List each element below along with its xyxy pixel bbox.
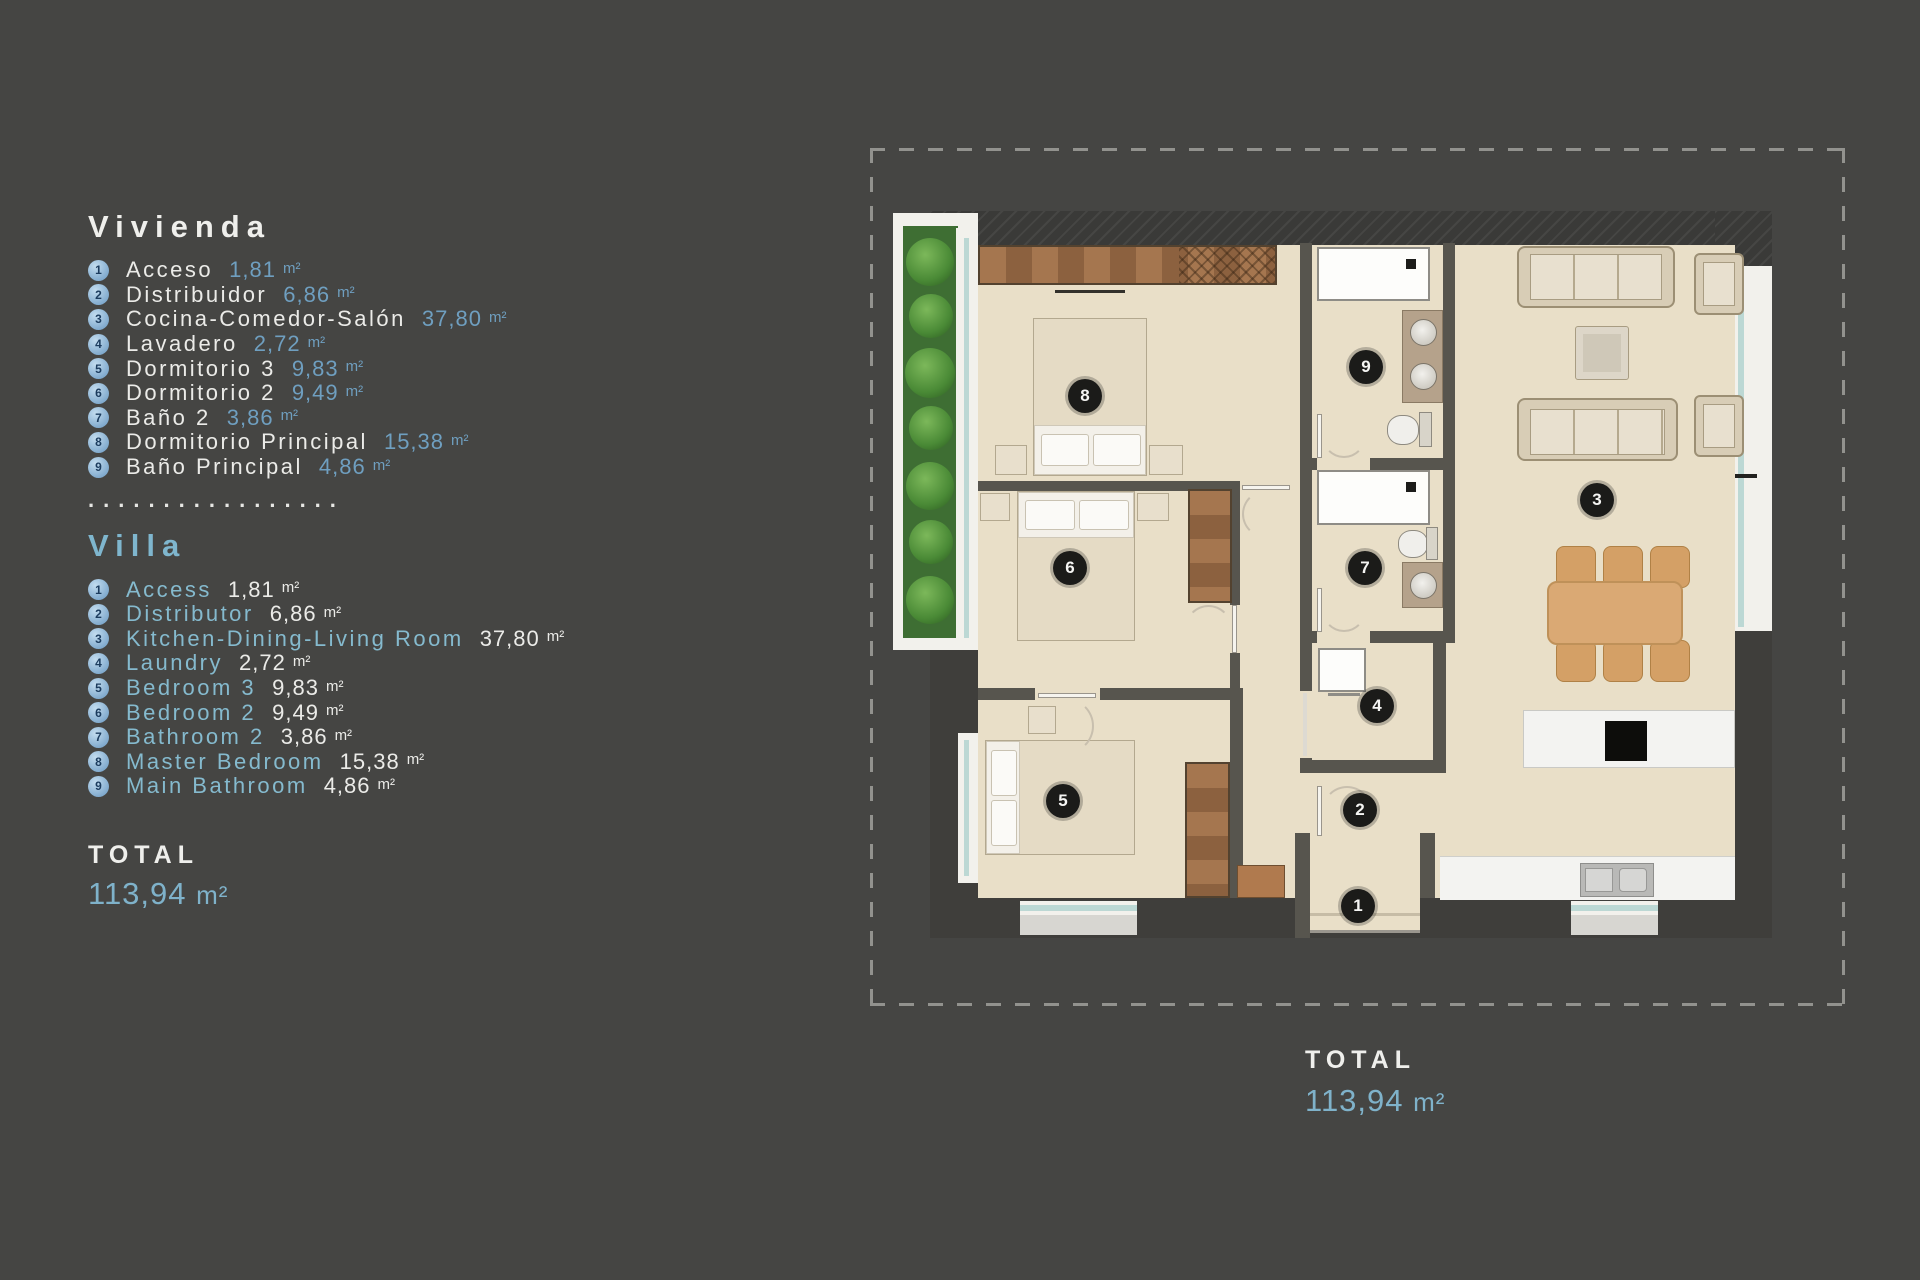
legend-item-unit: m² — [335, 727, 353, 744]
bush-icon — [906, 576, 954, 624]
legend-item-area: 37,80 — [422, 306, 482, 332]
sofa-bottom — [1517, 398, 1678, 461]
legend-item-number: 4 — [88, 334, 109, 355]
wall-laundry-right — [1433, 643, 1446, 760]
nightstand — [1149, 445, 1183, 475]
legend-item-unit: m² — [489, 309, 507, 326]
window-sill — [1571, 915, 1658, 935]
legend-item-unit: m² — [326, 678, 344, 695]
legend-item: 6Dormitorio 29,49m² — [88, 381, 748, 406]
legend-item: 9Baño Principal4,86m² — [88, 455, 748, 480]
legend-item-number: 3 — [88, 309, 109, 330]
room-badge-access: 1 — [1341, 889, 1375, 923]
legend-item: 9Main Bathroom4,86m² — [88, 774, 748, 799]
dining-table — [1547, 581, 1683, 645]
wall-access-right — [1420, 833, 1435, 898]
door-arc — [1242, 490, 1290, 538]
legend-item-number: 9 — [88, 457, 109, 478]
legend-item-number: 1 — [88, 260, 109, 281]
legend-total-label: TOTAL — [88, 841, 748, 870]
legend-item: 7Bathroom 23,86m² — [88, 725, 748, 750]
legend-item-unit: m² — [407, 751, 425, 768]
villa-title: Villa — [88, 527, 748, 565]
kitchen-sink — [1580, 863, 1654, 897]
legend-item-unit: m² — [337, 284, 355, 301]
plan-total-number: 113,94 — [1305, 1083, 1404, 1118]
window-left-bedroom5 — [958, 733, 978, 883]
legend-item: 1Access1,81m² — [88, 577, 748, 602]
legend-item-number: 9 — [88, 776, 109, 797]
room-badge-main-bathroom: 9 — [1349, 350, 1383, 384]
shower-bath2 — [1317, 470, 1430, 525]
legend-item-area: 9,49 — [292, 380, 339, 406]
legend-item-area: 3,86 — [227, 405, 274, 431]
laundry-sliding-door — [1303, 693, 1307, 756]
legend-item-area: 9,49 — [272, 700, 319, 726]
legend-item-name: Bedroom 3 — [126, 675, 256, 701]
legend-total-number: 113,94 — [88, 876, 187, 911]
legend-item-area: 37,80 — [480, 626, 540, 652]
legend-item-name: Dormitorio Principal — [126, 429, 368, 455]
door-bedroom2 — [1232, 605, 1237, 653]
legend-item-unit: m² — [283, 260, 301, 277]
legend-item-name: Bedroom 2 — [126, 700, 256, 726]
toilet-tank — [1426, 527, 1438, 560]
legend-item: 5Dormitorio 39,83m² — [88, 356, 748, 381]
wall-bath7-bottom-stub — [1307, 631, 1317, 643]
legend-item-number: 1 — [88, 579, 109, 600]
washer-base — [1328, 693, 1360, 696]
bush-icon — [906, 238, 954, 286]
legend-item-unit: m² — [373, 457, 391, 474]
room-badge-kitchen-living: 3 — [1580, 483, 1614, 517]
shower-main — [1317, 247, 1430, 301]
room-badge-laundry: 4 — [1360, 689, 1394, 723]
legend-item-name: Kitchen-Dining-Living Room — [126, 626, 464, 652]
legend-item-name: Access — [126, 577, 212, 603]
door-arc — [1038, 698, 1094, 754]
vanity-main — [1402, 310, 1443, 403]
legend-panel: Vivienda 1Acceso1,81m²2Distribuidor6,86m… — [88, 208, 748, 912]
window-mullion — [1735, 474, 1757, 478]
bush-icon — [909, 294, 953, 338]
window-glazing — [1020, 905, 1137, 911]
wardrobe-shelving — [1179, 247, 1275, 283]
legend-item-unit: m² — [346, 383, 364, 400]
bush-icon — [909, 520, 953, 564]
toilet-main — [1387, 415, 1419, 445]
legend-item: 7Baño 23,86m² — [88, 406, 748, 431]
vivienda-list: 1Acceso1,81m²2Distribuidor6,86m²3Cocina-… — [88, 258, 748, 479]
legend-item-area: 6,86 — [283, 282, 330, 308]
armchair-top — [1694, 253, 1744, 315]
window-left-bedrooms — [956, 228, 978, 648]
wall-bed6-bed5-right — [1100, 688, 1243, 700]
plot-boundary-top — [870, 148, 1845, 151]
toilet-tank — [1419, 412, 1432, 447]
legend-item: 6Bedroom 29,49m² — [88, 700, 748, 725]
armchair-bottom — [1694, 395, 1744, 457]
dining-chair — [1556, 640, 1596, 682]
window-glazing — [964, 740, 969, 876]
top-wall — [930, 211, 1772, 245]
legend-item-number: 8 — [88, 432, 109, 453]
legend-item-unit: m² — [547, 628, 565, 645]
villa-list: 1Access1,81m²2Distributor6,86m²3Kitchen-… — [88, 577, 748, 798]
legend-item-name: Lavadero — [126, 331, 238, 357]
cooktop — [1605, 721, 1647, 761]
legend-item-unit: m² — [281, 407, 299, 424]
window-glazing — [1571, 905, 1658, 911]
legend-item-unit: m² — [326, 702, 344, 719]
legend-item-name: Main Bathroom — [126, 773, 308, 799]
legend-item-name: Acceso — [126, 257, 213, 283]
bush-icon — [905, 348, 955, 398]
wall-bath9-bottom-stub — [1307, 458, 1317, 470]
dining-chair — [1603, 640, 1643, 682]
legend-item-name: Dormitorio 2 — [126, 380, 276, 406]
window-bottom-bedroom5 — [1020, 901, 1137, 915]
legend-item: 2Distributor6,86m² — [88, 602, 748, 627]
legend-item: 4Laundry2,72m² — [88, 651, 748, 676]
legend-item-name: Baño Principal — [126, 454, 303, 480]
vanity-bath2 — [1402, 562, 1443, 608]
legend-item-area: 15,38 — [340, 749, 400, 775]
entry-cabinet — [1237, 865, 1285, 898]
legend-total-value: 113,94 m² — [88, 876, 748, 912]
legend-item-unit: m² — [282, 579, 300, 596]
window-sill — [1020, 915, 1137, 935]
legend-item-area: 2,72 — [239, 650, 286, 676]
kitchen-counter — [1440, 856, 1735, 900]
armchair-cushion — [1703, 262, 1735, 306]
legend-item-number: 8 — [88, 751, 109, 772]
wall-bed6-bed5-left — [978, 688, 1035, 700]
room-badge-bathroom2: 7 — [1348, 551, 1382, 585]
legend-item-area: 2,72 — [254, 331, 301, 357]
legend-total: TOTAL 113,94 m² — [88, 841, 748, 912]
wardrobe-bedroom3 — [1185, 762, 1230, 898]
plan-total: TOTAL 113,94 m² — [1305, 1046, 1445, 1119]
wall-access-left — [1295, 833, 1310, 938]
window-bottom-kitchen — [1571, 901, 1658, 915]
legend-item: 3Cocina-Comedor-Salón37,80m² — [88, 307, 748, 332]
legend-item-number: 3 — [88, 628, 109, 649]
legend-item: 2Distribuidor6,86m² — [88, 283, 748, 308]
legend-item: 5Bedroom 39,83m² — [88, 676, 748, 701]
legend-item-area: 1,81 — [229, 257, 276, 283]
page: Vivienda 1Acceso1,81m²2Distribuidor6,86m… — [0, 0, 1920, 1280]
legend-item-number: 6 — [88, 383, 109, 404]
legend-item-name: Dormitorio 3 — [126, 356, 276, 382]
floor-plan: 1 2 3 4 5 6 7 8 9 — [870, 148, 1845, 1006]
wardrobe-track — [1055, 290, 1125, 293]
legend-item-name: Baño 2 — [126, 405, 211, 431]
legend-item-name: Master Bedroom — [126, 749, 324, 775]
legend-item-unit: m² — [324, 604, 342, 621]
nightstand — [995, 445, 1027, 475]
legend-item: 1Acceso1,81m² — [88, 258, 748, 283]
legend-item-number: 4 — [88, 653, 109, 674]
legend-item-number: 6 — [88, 702, 109, 723]
legend-item-name: Cocina-Comedor-Salón — [126, 306, 406, 332]
legend-item: 8Master Bedroom15,38m² — [88, 750, 748, 775]
separator-dots: ................. — [88, 495, 748, 505]
legend-item-number: 2 — [88, 604, 109, 625]
wall-laundry-bottom — [1307, 760, 1446, 773]
legend-item-number: 5 — [88, 678, 109, 699]
washing-machine — [1318, 648, 1366, 692]
plan-total-label: TOTAL — [1305, 1046, 1445, 1075]
toilet-bath2 — [1398, 530, 1428, 558]
legend-item-area: 6,86 — [270, 601, 317, 627]
legend-item-number: 7 — [88, 727, 109, 748]
plan-total-unit: m² — [1413, 1087, 1445, 1117]
coffee-table — [1575, 326, 1629, 380]
nightstand — [980, 493, 1010, 521]
room-badge-bedroom2: 6 — [1053, 551, 1087, 585]
legend-item-area: 15,38 — [384, 429, 444, 455]
legend-item-number: 7 — [88, 407, 109, 428]
legend-item-area: 4,86 — [324, 773, 371, 799]
wall-bathrooms-living — [1443, 243, 1455, 643]
legend-item-area: 1,81 — [228, 577, 275, 603]
legend-item-unit: m² — [378, 776, 396, 793]
legend-item-number: 5 — [88, 358, 109, 379]
shower-drain — [1406, 259, 1416, 269]
legend-item-area: 9,83 — [292, 356, 339, 382]
entry-threshold — [1310, 930, 1420, 933]
planter-bed — [903, 226, 958, 638]
door-arc — [1322, 588, 1366, 632]
nightstand — [1137, 493, 1169, 521]
door-arc — [1322, 414, 1366, 458]
wall-laundry-left-upper — [1300, 643, 1312, 691]
legend-total-unit: m² — [196, 880, 228, 910]
legend-item-unit: m² — [308, 334, 326, 351]
room-badge-bedroom3: 5 — [1046, 784, 1080, 818]
wall-bath7-left — [1300, 470, 1312, 643]
legend-item-unit: m² — [451, 432, 469, 449]
legend-item: 8Dormitorio Principal15,38m² — [88, 430, 748, 455]
wardrobe-bedroom2 — [1188, 489, 1232, 603]
sink-basin — [1619, 868, 1647, 892]
wardrobe-master — [978, 245, 1277, 285]
legend-item-name: Bathroom 2 — [126, 724, 265, 750]
plan-total-value: 113,94 m² — [1305, 1083, 1445, 1119]
room-badge-distributor: 2 — [1343, 793, 1377, 827]
plot-boundary-left — [870, 148, 873, 1006]
legend-item-unit: m² — [346, 358, 364, 375]
sink-drainer — [1585, 868, 1613, 892]
legend-item-area: 9,83 — [272, 675, 319, 701]
door-arc — [1185, 605, 1232, 652]
legend-item-area: 3,86 — [281, 724, 328, 750]
kitchen-island — [1523, 710, 1735, 768]
room-badge-master-bedroom: 8 — [1068, 379, 1102, 413]
legend-item-name: Laundry — [126, 650, 223, 676]
window-glazing — [964, 238, 969, 638]
coffee-table-top — [1583, 334, 1621, 372]
legend-item-area: 4,86 — [319, 454, 366, 480]
vivienda-title: Vivienda — [88, 208, 748, 246]
bush-icon — [906, 462, 954, 510]
plot-boundary-bottom — [870, 1003, 1845, 1006]
sofa-top — [1517, 246, 1675, 308]
dining-chair — [1650, 640, 1690, 682]
wall-bath9-left — [1300, 243, 1312, 470]
plot-boundary-right — [1842, 148, 1845, 1006]
armchair-cushion — [1703, 404, 1735, 448]
legend-item-unit: m² — [293, 653, 311, 670]
shower-drain — [1406, 482, 1416, 492]
legend-item: 3Kitchen-Dining-Living Room37,80m² — [88, 627, 748, 652]
legend-item-name: Distributor — [126, 601, 254, 627]
legend-item-name: Distribuidor — [126, 282, 267, 308]
bush-icon — [909, 406, 953, 450]
legend-item: 4Lavadero2,72m² — [88, 332, 748, 357]
legend-item-number: 2 — [88, 284, 109, 305]
